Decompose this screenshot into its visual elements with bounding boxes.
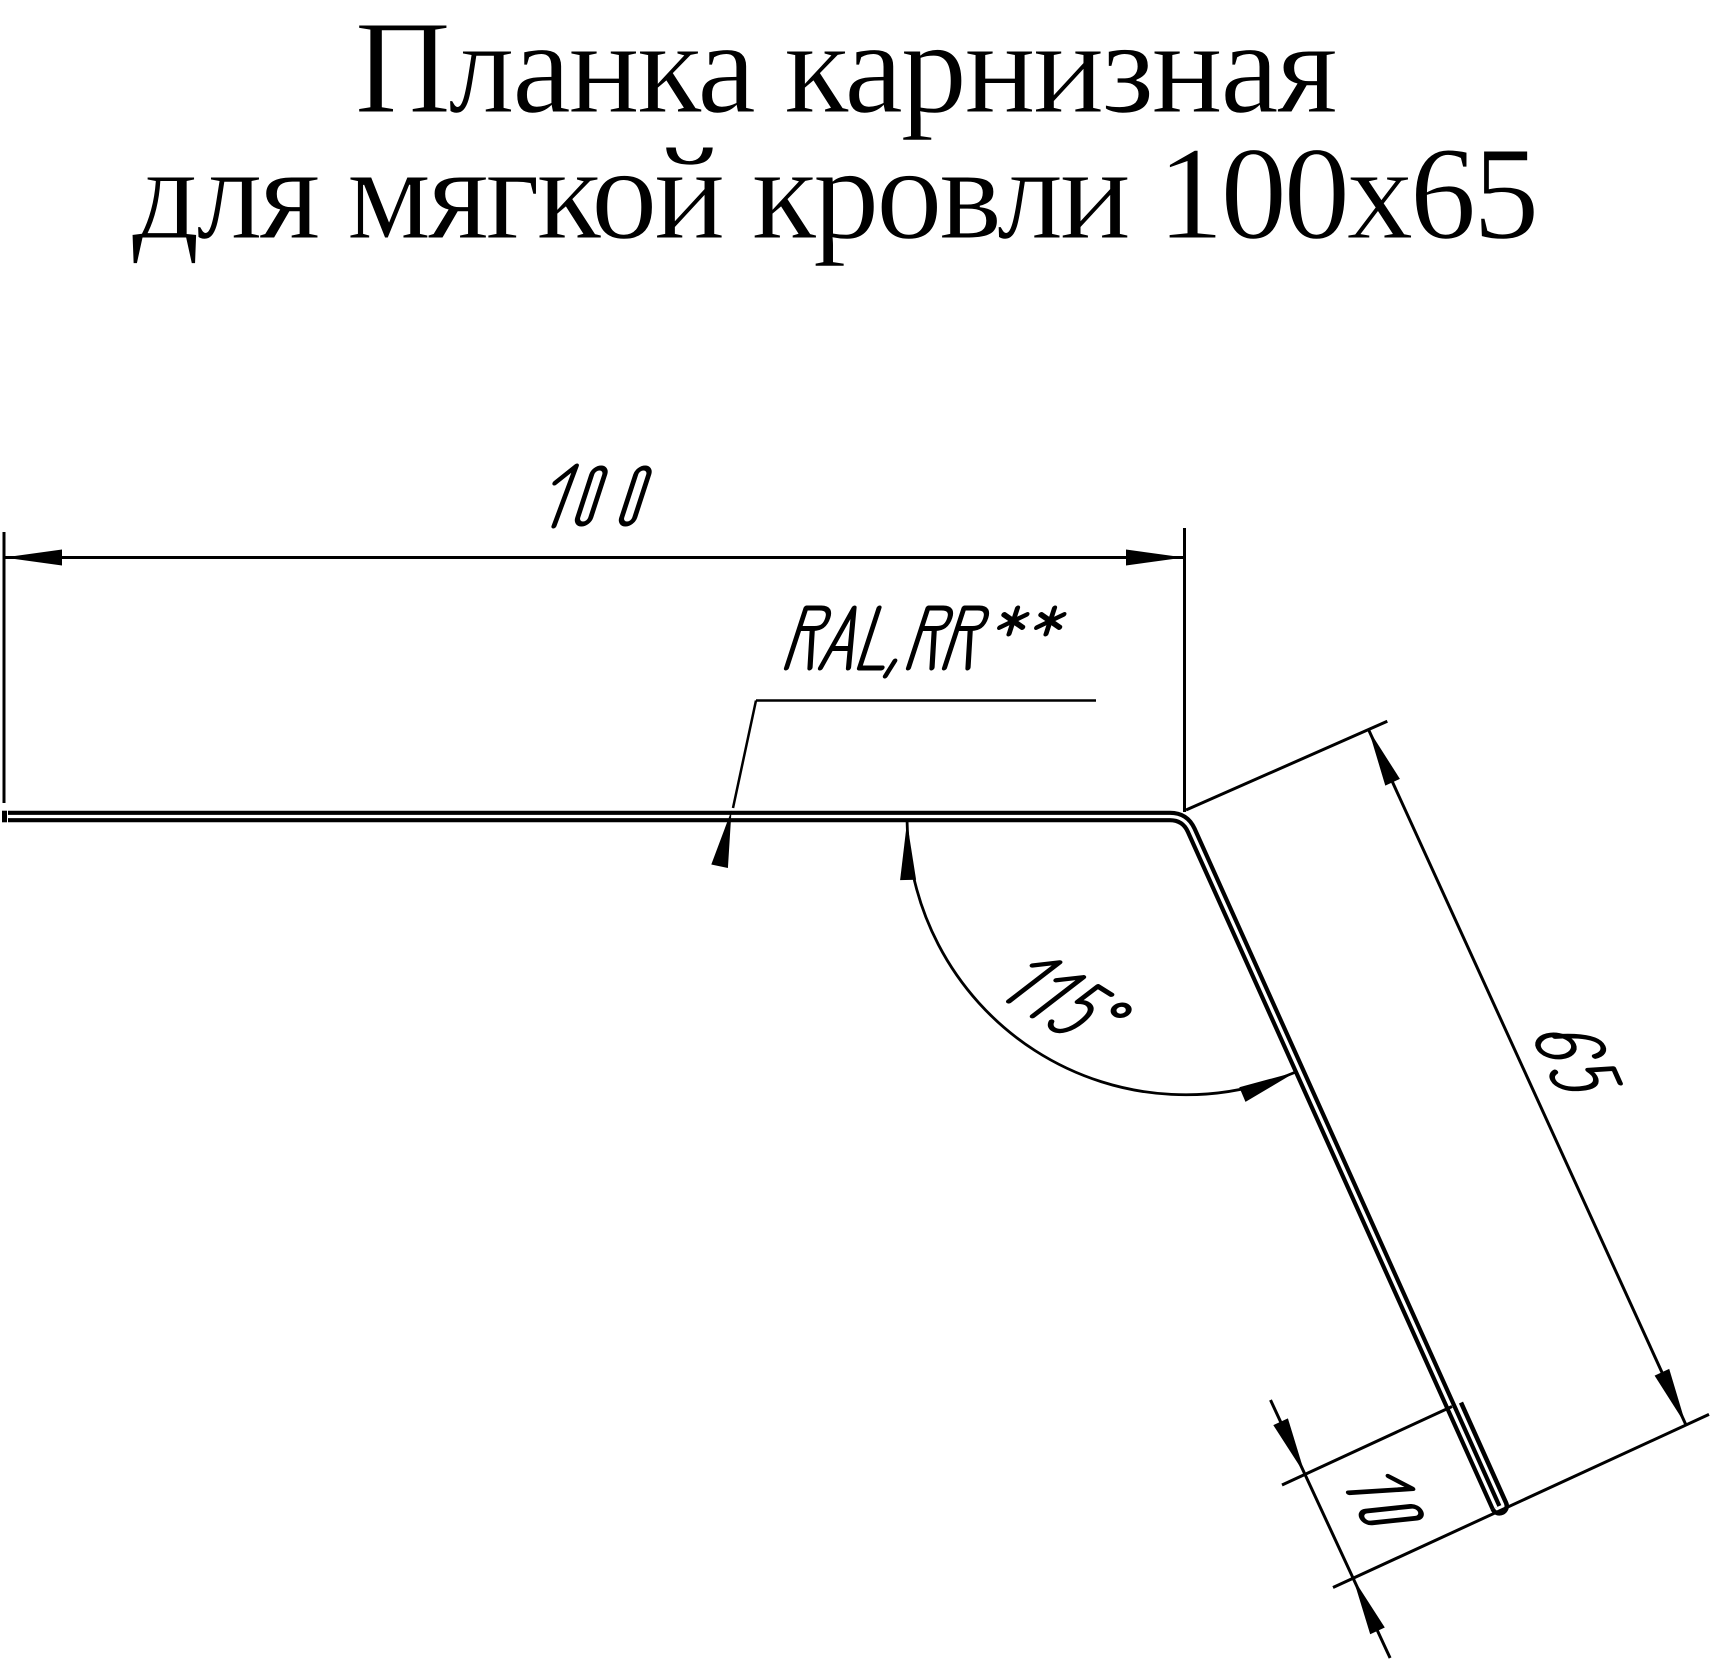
svg-text:для мягкой кровли 100х65: для мягкой кровли 100х65 — [132, 119, 1536, 267]
